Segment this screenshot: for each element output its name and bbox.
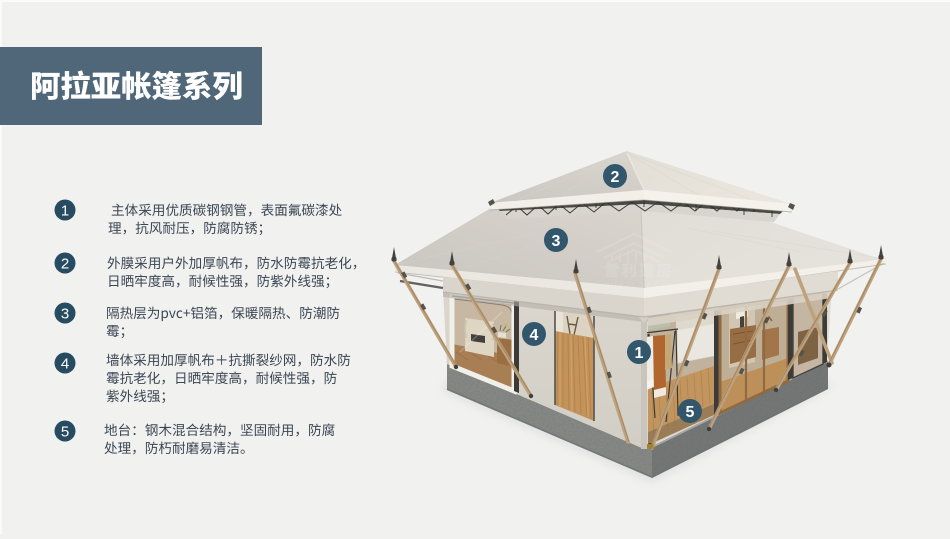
svg-text:4: 4 [61, 355, 69, 372]
svg-text:3: 3 [61, 305, 69, 322]
svg-text:3: 3 [552, 233, 561, 250]
svg-text:5: 5 [61, 423, 69, 440]
svg-text:5: 5 [686, 404, 695, 421]
svg-text:1: 1 [635, 345, 644, 362]
svg-text:4: 4 [530, 327, 539, 344]
svg-text:1: 1 [61, 202, 69, 219]
svg-text:2: 2 [61, 255, 69, 272]
svg-text:XUELI TENT: XUELI TENT [605, 283, 667, 290]
svg-text:2: 2 [611, 169, 620, 186]
